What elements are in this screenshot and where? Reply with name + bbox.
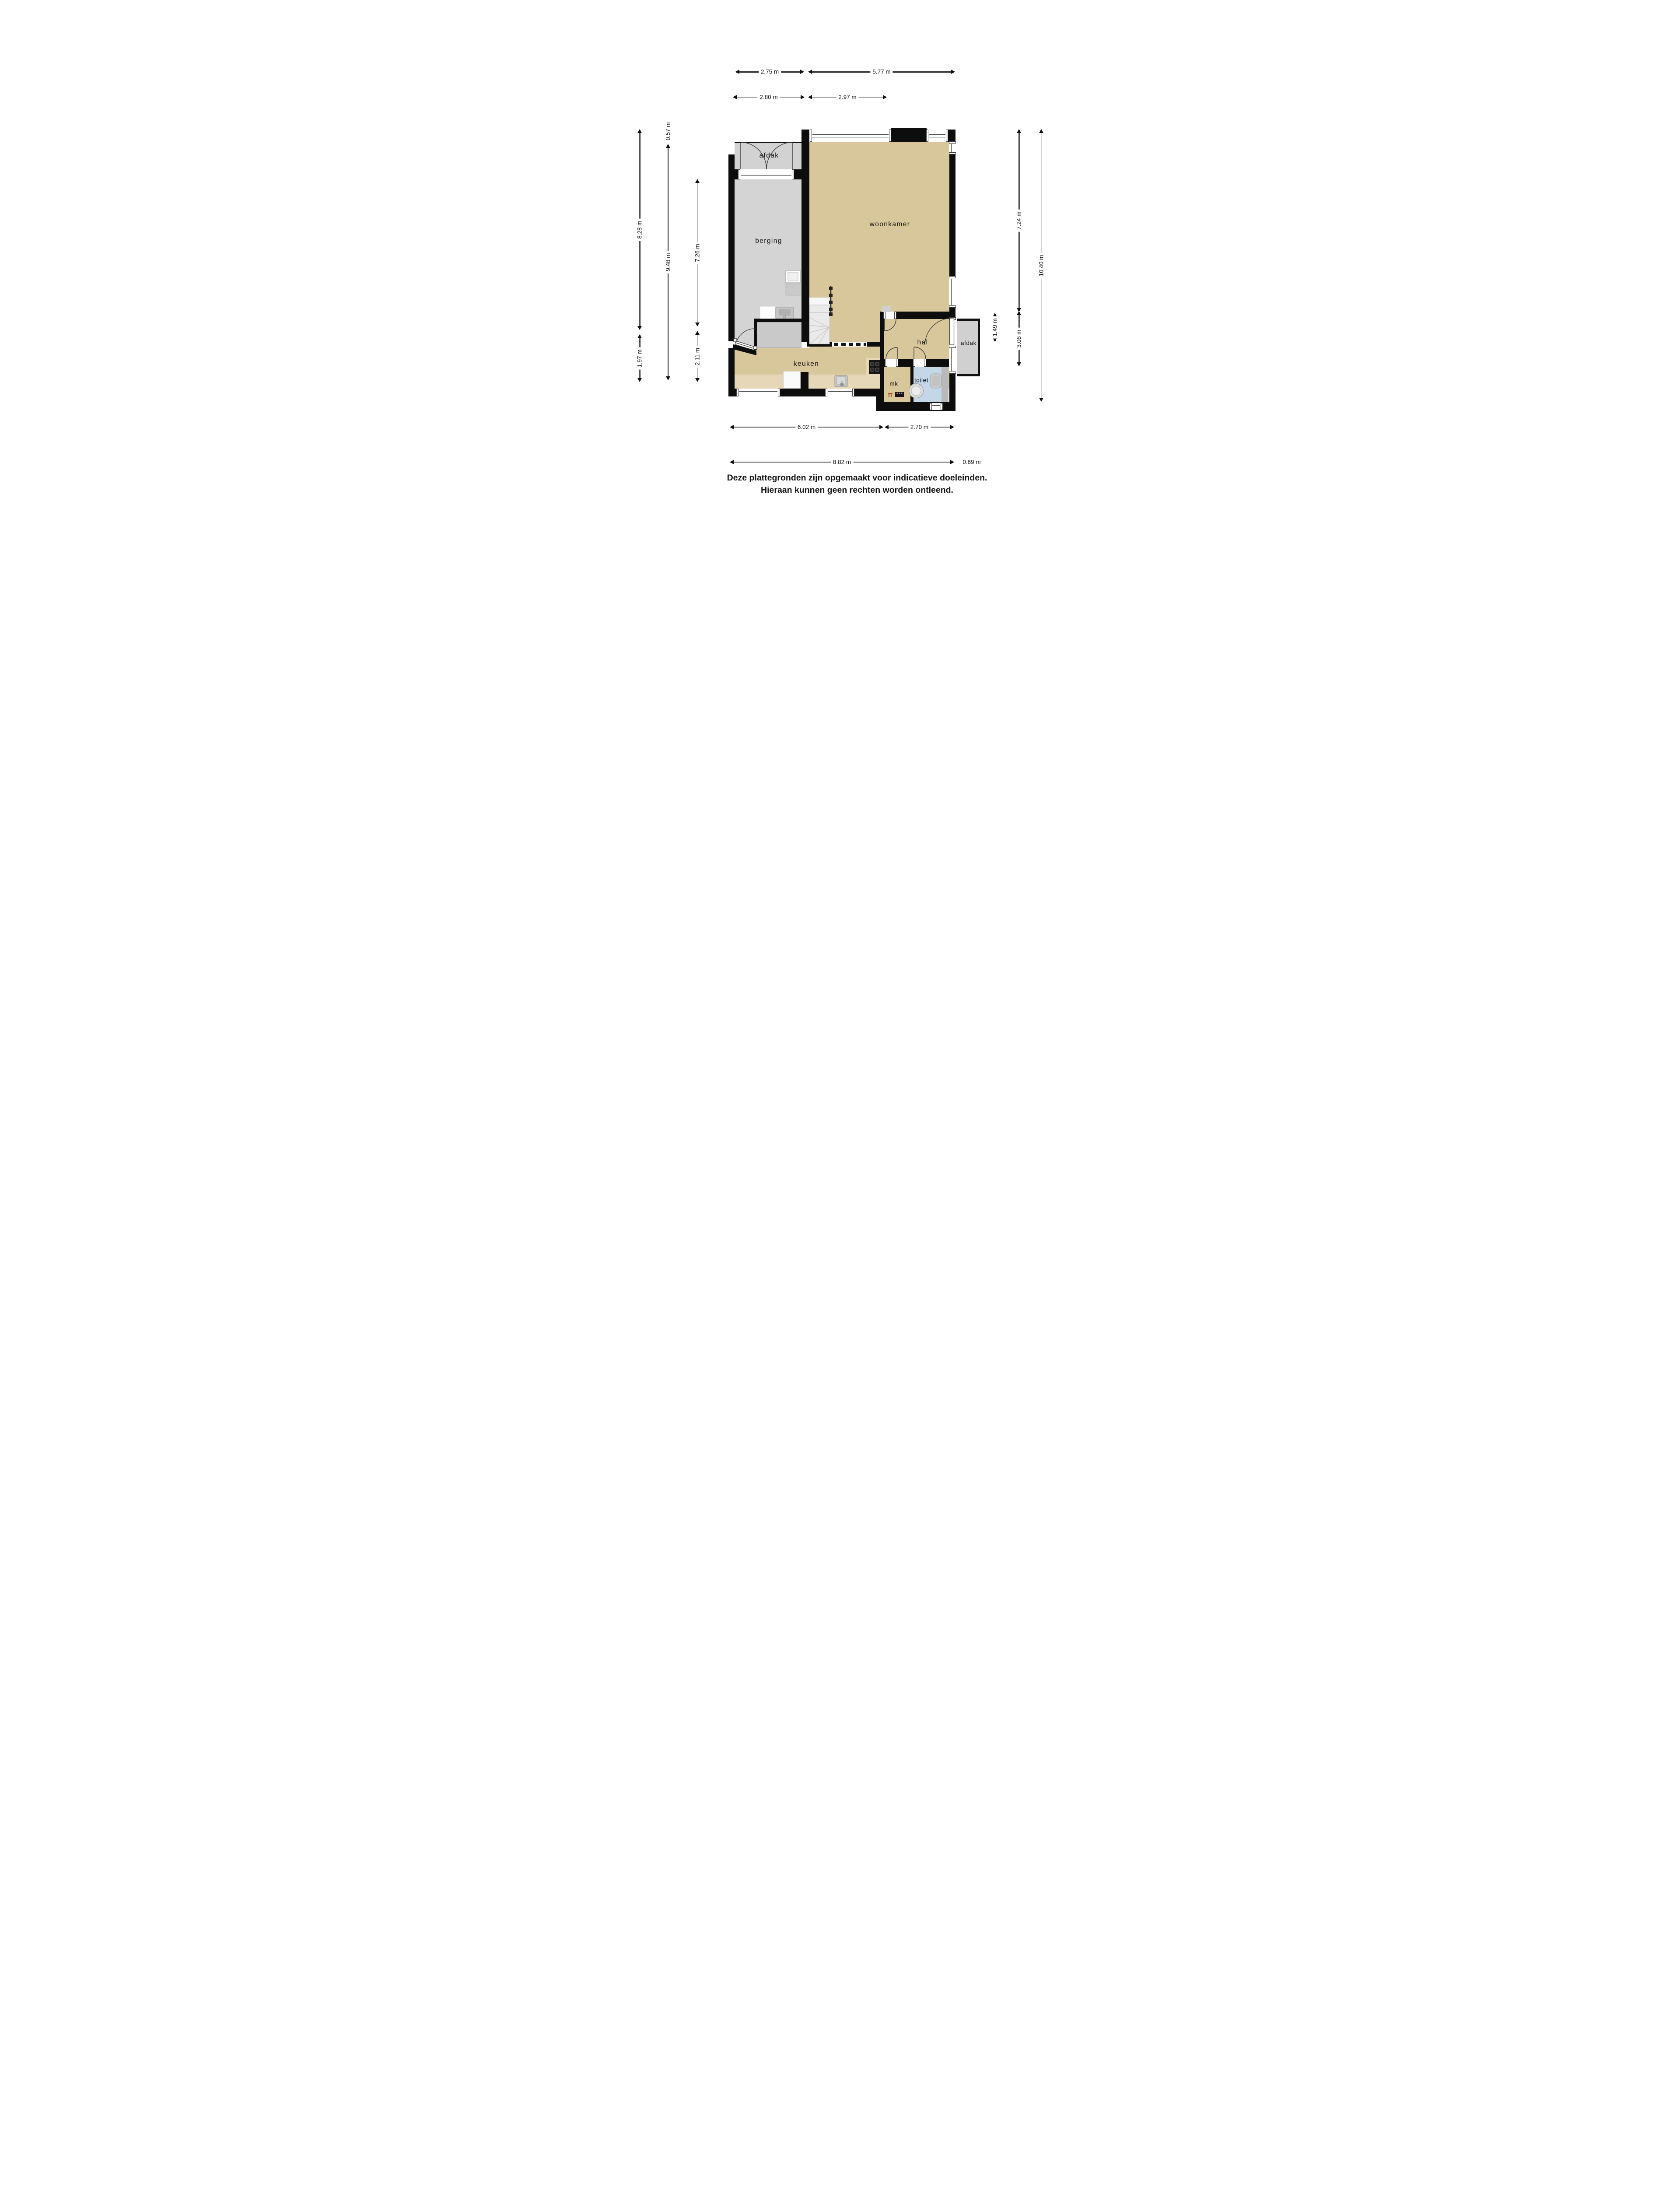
- window-sidelight: [949, 346, 956, 373]
- room-label-hal: hal: [917, 339, 928, 347]
- dimension-left-8_28: 8.28 m: [637, 130, 642, 330]
- berging-floor: [735, 179, 801, 319]
- dimension-left-9_48: 9.48 m: [666, 144, 670, 380]
- room-label-toilet: toilet: [914, 377, 928, 384]
- wall: [910, 367, 913, 402]
- wall: [728, 154, 735, 341]
- window: [927, 130, 948, 142]
- dimension-left-7_26: 7.26 m: [695, 179, 700, 326]
- kitchen-counter-column: [866, 358, 880, 389]
- wall: [891, 128, 927, 142]
- disclaimer-line2: Hieraan kunnen geen rechten worden ontle…: [665, 484, 1050, 496]
- wall: [807, 342, 832, 347]
- berging-floor-tongue: [735, 319, 754, 349]
- disclaimer-text: Deze plattegronden zijn opgemaakt voor i…: [665, 472, 1050, 496]
- room-label-woonkamer: woonkamer: [870, 221, 910, 228]
- door-opening: [913, 359, 926, 367]
- room-label-berging: berging: [755, 237, 782, 245]
- window: [738, 169, 794, 179]
- dimension-top-2_97: 2.97 m: [808, 95, 886, 99]
- dimension-right-7_24: 7.24 m: [1017, 130, 1021, 312]
- kitchen-appliance: [783, 371, 801, 389]
- front-door-opening: [949, 318, 956, 346]
- disclaimer-line1: Deze plattegronden zijn opgemaakt voor i…: [665, 472, 1050, 484]
- toilet-duct: [941, 367, 948, 402]
- door-opening: [885, 359, 898, 367]
- wall-pier: [801, 372, 808, 389]
- window: [810, 130, 891, 142]
- window: [930, 403, 942, 410]
- wall: [754, 319, 757, 350]
- dimension-bottom-0_69: 0.69 m: [962, 459, 980, 466]
- door-opening: [884, 312, 896, 319]
- wall: [876, 402, 955, 411]
- dimension-top-2_75: 2.75 m: [736, 70, 804, 74]
- dimension-left-1_97: 1.97 m: [637, 335, 642, 382]
- closet-floor: [757, 322, 801, 348]
- dimension-bottom-2_70: 2.70 m: [885, 425, 954, 429]
- afdak-right-floor: [957, 319, 980, 376]
- wall: [880, 312, 884, 389]
- room-label-keuken: keuken: [794, 360, 819, 368]
- room-label-afdak-top: afdak: [759, 152, 779, 160]
- wall: [867, 342, 880, 347]
- dimension-left-0_57: 0.57 m: [665, 122, 672, 140]
- floor-plan: afdak woonkamer berging hal afdak keuken…: [630, 0, 1050, 560]
- window: [737, 389, 780, 396]
- wall: [728, 169, 738, 179]
- dimension-right-3_06: 3.06 m: [1017, 312, 1021, 366]
- dimension-bottom-6_02: 6.02 m: [730, 425, 883, 429]
- woonkamer-floor: [809, 142, 949, 389]
- dimension-right-1_49: 1.49 m: [993, 313, 997, 341]
- room-label-mk: mk: [889, 381, 898, 387]
- window: [826, 389, 854, 396]
- dimension-top-2_80: 2.80 m: [733, 95, 804, 99]
- toilet-floor: [913, 367, 941, 402]
- dimension-left-2_11: 2.11 m: [695, 331, 700, 382]
- window: [949, 142, 956, 154]
- wall: [754, 319, 801, 322]
- window: [949, 277, 956, 307]
- dimension-top-5_77: 5.77 m: [808, 70, 955, 74]
- dimension-bottom-8_82: 8.82 m: [730, 460, 954, 464]
- room-label-afdak-right: afdak: [961, 340, 976, 347]
- wall: [801, 130, 809, 342]
- dimension-right-10_40: 10.40 m: [1039, 130, 1043, 401]
